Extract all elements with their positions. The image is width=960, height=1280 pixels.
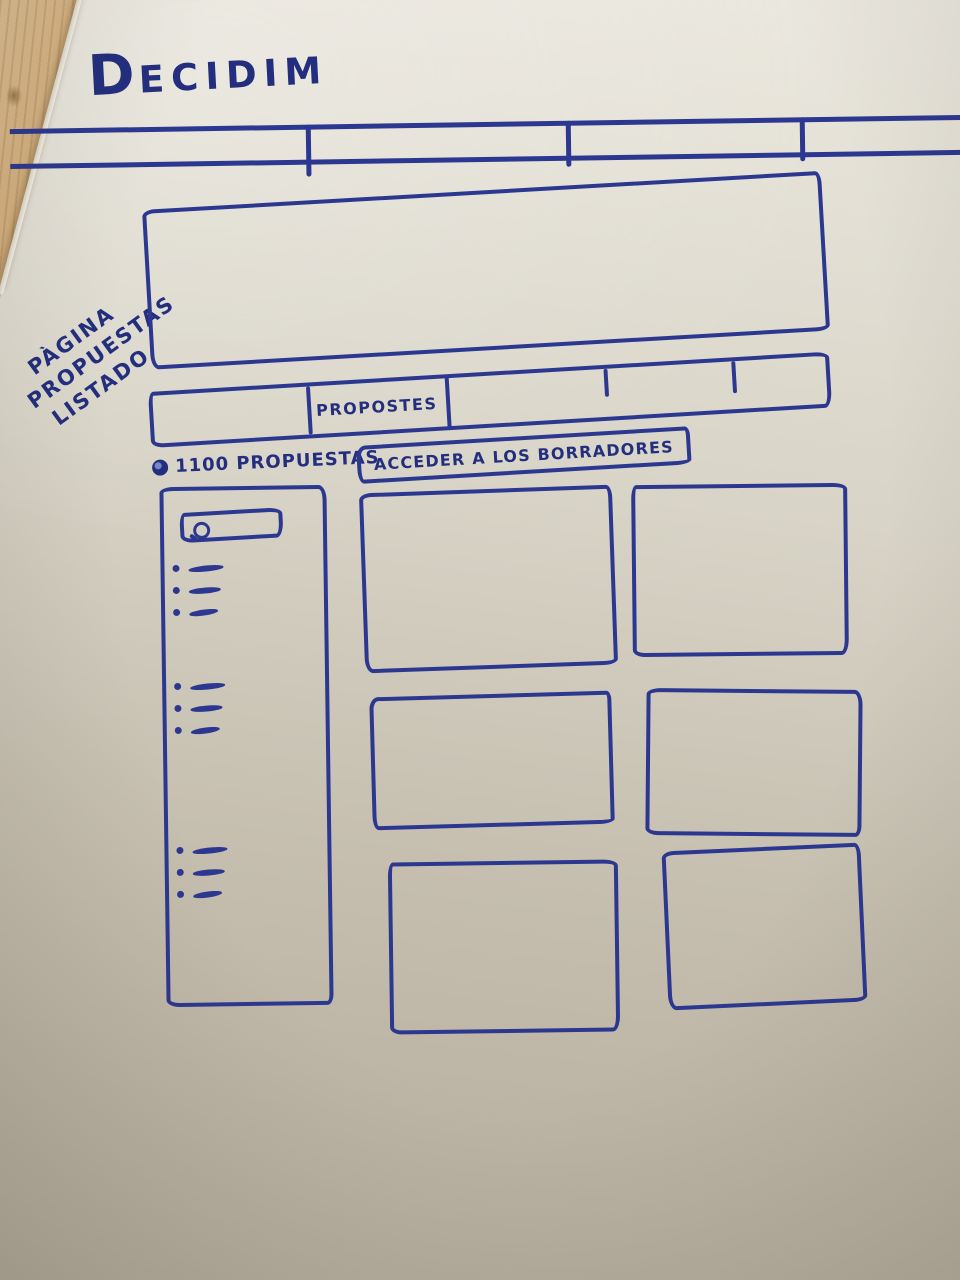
filter-group-2 — [174, 682, 226, 734]
access-drafts-button[interactable]: ACCEDER A LOS BORRADORES — [356, 426, 692, 484]
count-circle-icon — [152, 459, 169, 476]
nav-divider — [800, 117, 805, 161]
option-label-placeholder — [188, 564, 223, 573]
proposal-card-5[interactable] — [388, 859, 620, 1034]
proposal-card-6[interactable] — [661, 843, 867, 1011]
bullet-dot — [172, 565, 179, 572]
tab-propostes[interactable]: PROPOSTES — [306, 378, 448, 434]
filter-option[interactable] — [173, 586, 224, 594]
filter-option[interactable] — [175, 726, 226, 734]
option-label-placeholder — [192, 846, 227, 855]
wireframe-sheet: DECIDIM PÀGINA PROPUESTAS LISTADO PROPOS… — [0, 0, 960, 1280]
bullet-dot — [176, 847, 183, 854]
filter-option[interactable] — [174, 682, 225, 690]
option-label-placeholder — [193, 889, 222, 898]
nav-divider — [306, 125, 311, 177]
search-input[interactable] — [179, 507, 284, 543]
site-logo: DECIDIM — [86, 32, 329, 109]
proposals-count: 1100 PROPUESTAS — [152, 447, 380, 478]
filter-group-3 — [176, 846, 228, 898]
filter-option[interactable] — [172, 564, 223, 572]
option-label-placeholder — [190, 704, 222, 712]
filter-option[interactable] — [174, 704, 225, 712]
filter-option[interactable] — [173, 608, 224, 616]
search-icon — [193, 521, 211, 539]
option-label-placeholder — [193, 868, 225, 876]
bullet-dot — [175, 727, 182, 734]
proposal-card-1[interactable] — [359, 485, 618, 674]
nav-item-1[interactable] — [10, 131, 248, 165]
tab-3[interactable] — [445, 369, 607, 426]
filter-option[interactable] — [176, 846, 227, 854]
tab-4[interactable] — [603, 361, 734, 417]
proposals-count-label: 1100 PROPUESTAS — [175, 447, 380, 477]
nav-item-4[interactable] — [724, 120, 960, 154]
bullet-dot — [173, 587, 180, 594]
filter-group-1 — [172, 564, 224, 616]
filter-option[interactable] — [177, 868, 228, 876]
option-label-placeholder — [191, 725, 220, 734]
nav-item-2[interactable] — [248, 127, 486, 161]
option-label-placeholder — [190, 682, 225, 691]
bullet-dot — [174, 705, 181, 712]
proposal-card-2[interactable] — [631, 483, 849, 657]
proposal-card-3[interactable] — [369, 691, 615, 831]
hero-banner — [142, 171, 830, 370]
nav-divider — [566, 121, 571, 167]
bullet-dot — [173, 609, 180, 616]
option-label-placeholder — [189, 607, 218, 616]
component-tabs: PROPOSTES — [148, 352, 832, 448]
tab-5[interactable] — [731, 355, 836, 409]
filter-option[interactable] — [177, 890, 228, 898]
bullet-dot — [177, 869, 184, 876]
top-navbar — [10, 115, 960, 169]
nav-item-3[interactable] — [486, 123, 724, 157]
tab-1[interactable] — [152, 387, 309, 444]
proposal-card-4[interactable] — [645, 688, 862, 837]
filters-sidebar — [159, 485, 333, 1007]
option-label-placeholder — [189, 586, 221, 594]
bullet-dot — [174, 683, 181, 690]
bullet-dot — [177, 891, 184, 898]
